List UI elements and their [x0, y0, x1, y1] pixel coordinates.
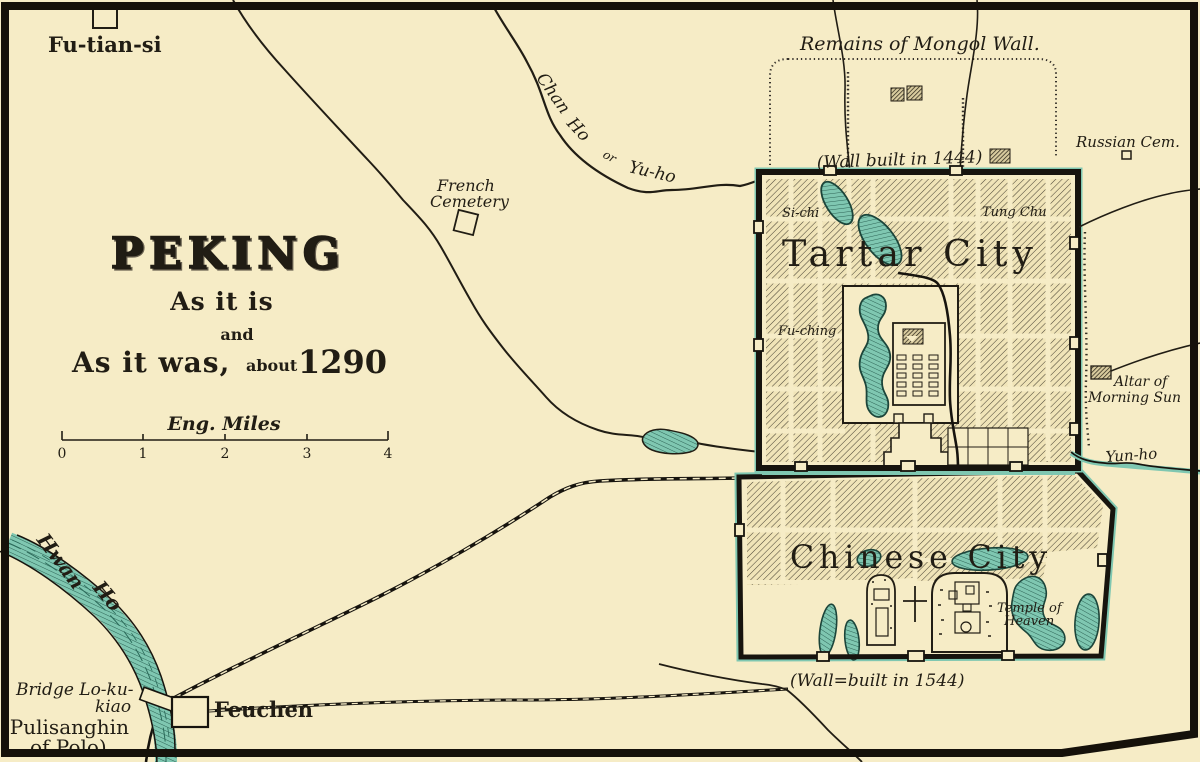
map-subtitle-2: and — [220, 325, 253, 344]
label-tung-chu: Tung Chu — [982, 205, 1047, 220]
map-subtitle-3c: 1290 — [298, 343, 387, 381]
map-subtitle-1: As it is — [169, 287, 274, 316]
label-fu-ching: Fu-ching — [777, 324, 836, 339]
map-title: PEKING — [111, 229, 346, 279]
temple-of-heaven-enclosure — [932, 573, 1007, 652]
label-bridge-2: kiao — [95, 697, 131, 717]
feuchen-town-symbol — [172, 697, 208, 727]
label-russian-cem: Russian Cem. — [1075, 133, 1180, 151]
scale-tick-0: 0 — [58, 446, 67, 462]
altar-of-agriculture-enclosure — [867, 575, 895, 645]
label-altar-2: Morning Sun — [1087, 390, 1181, 406]
legation-quarter-blocks — [948, 428, 1028, 465]
label-altar-1: Altar of — [1112, 374, 1170, 390]
altar-of-morning-sun-symbol — [1091, 366, 1111, 379]
label-french-cemetery-2: Cemetery — [430, 192, 510, 211]
label-feuchen: Feuchen — [214, 697, 313, 722]
label-yun-ho: Yun-ho — [1105, 444, 1158, 466]
scale-tick-1: 1 — [139, 446, 148, 462]
label-si-chi: Si-chi — [782, 206, 819, 221]
label-fu-tian-si: Fu-tian-si — [48, 32, 162, 57]
scale-tick-4: 4 — [384, 446, 393, 462]
map-page: Fu-tian-si Remains of Mongol Wall. (Wall… — [0, 0, 1200, 762]
map-subtitle-3a: As it was, — [71, 346, 230, 379]
label-chinese-city: Chinese City — [790, 538, 1052, 576]
label-mongol-wall: Remains of Mongol Wall. — [799, 33, 1040, 55]
label-tartar-city: Tartar City — [782, 234, 1038, 275]
peking-map-canvas: Fu-tian-si Remains of Mongol Wall. (Wall… — [0, 0, 1200, 762]
label-temple-of-heaven-2: Heaven — [1003, 614, 1054, 629]
scale-caption: Eng. Miles — [166, 413, 280, 435]
scale-tick-3: 3 — [303, 446, 312, 462]
label-wall-1544: (Wall=built in 1544) — [790, 671, 965, 691]
scale-tick-2: 2 — [221, 446, 230, 462]
map-subtitle-3b: about — [246, 356, 298, 375]
